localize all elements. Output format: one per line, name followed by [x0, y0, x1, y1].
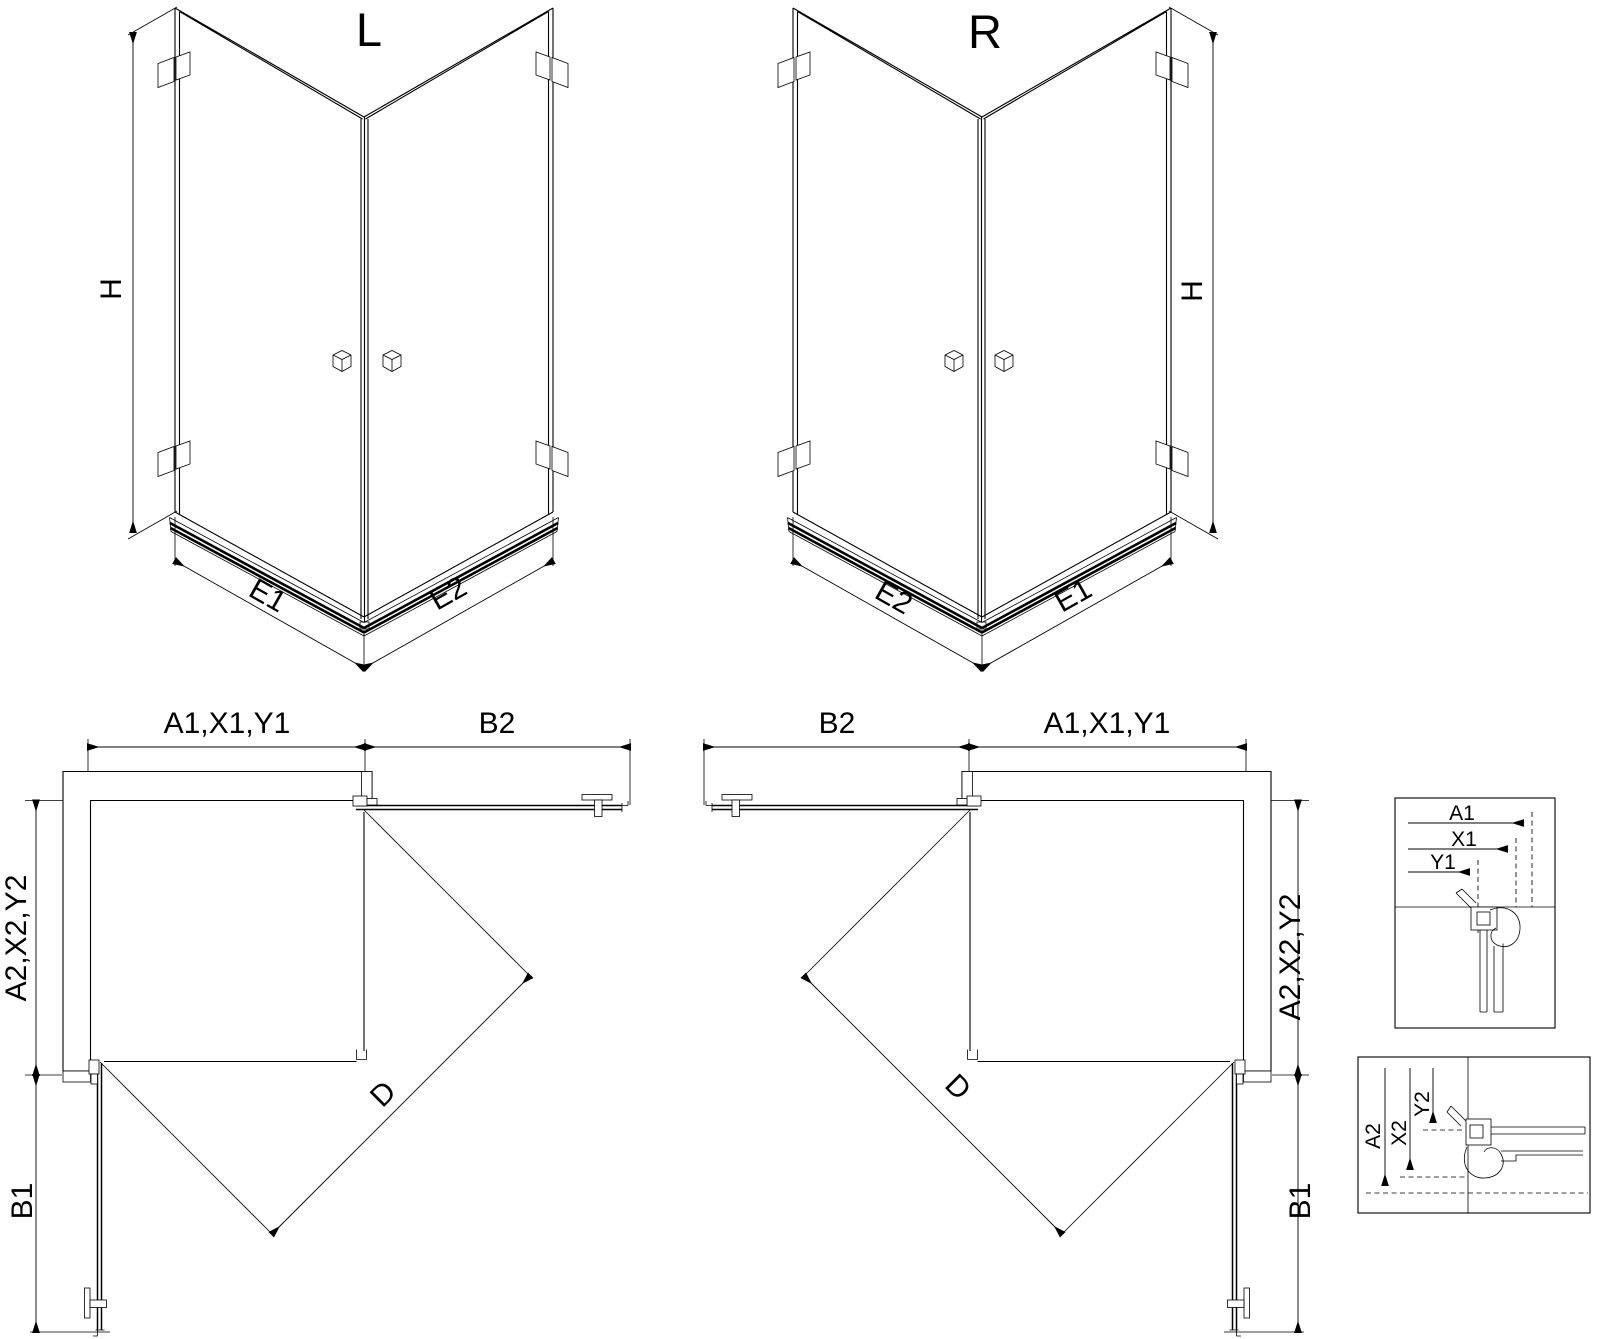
iso-left-title: L: [356, 3, 382, 56]
iso-right-height-label: H: [1176, 280, 1209, 302]
detail-y2-label: Y2: [1411, 1091, 1434, 1117]
wall-end-cap: [63, 1071, 91, 1082]
plan-left-b2-dimension: B2: [479, 707, 516, 740]
wall-profile-section: [1456, 889, 1520, 1012]
plan-right-top-dimension: A1,X1,Y1: [1044, 707, 1171, 740]
detail-x2-label: X2: [1388, 1120, 1411, 1146]
shower-enclosure-technical-drawing: L H E1 E2 R H E2 E1 A1,X1,Y1 B2 A2,X2,Y2…: [0, 0, 1600, 1339]
iso-right-title: R: [968, 5, 1002, 58]
plan-view-geometry: [25, 739, 630, 1336]
door-open-top: [353, 795, 628, 817]
door-handle: [582, 795, 612, 801]
plan-left-b1-dimension: B1: [6, 1183, 39, 1220]
door-open-left: [85, 1060, 107, 1336]
door-hinge: [367, 799, 377, 806]
plan-right-b2-dimension: B2: [819, 707, 856, 740]
door-hinges: [158, 52, 568, 477]
door-handle: [90, 1300, 107, 1308]
detail-a1-label: A1: [1449, 802, 1475, 825]
glass-panels: [175, 8, 553, 629]
door-handle: [85, 1288, 91, 1318]
door-hinge: [91, 1074, 98, 1084]
plan-left-top-dimension: A1,X1,Y1: [164, 707, 291, 740]
door-handle: [595, 800, 603, 817]
detail-a2-label: A2: [1362, 1123, 1385, 1149]
iso-right-e1-label: E1: [1049, 572, 1097, 619]
labels: L H E1 E2 R H E2 E1 A1,X1,Y1 B2 A2,X2,Y2…: [0, 3, 1477, 1219]
door-hinge: [353, 796, 367, 806]
detail-x1-label: X1: [1451, 828, 1477, 851]
detail-y1-label: Y1: [1430, 851, 1456, 874]
doors-closed: [104, 812, 367, 1062]
door-handles: [333, 351, 401, 372]
iso-right-e2-label: E2: [870, 574, 918, 621]
iso-view-geometry: [128, 7, 568, 672]
door-hinge: [89, 1060, 99, 1074]
door-swing-lines: [100, 810, 530, 1234]
diagonal-dimension-line: [272, 976, 530, 1234]
iso-view-right-geometry: [778, 7, 1218, 672]
drawing-svg: L H E1 E2 R H E2 E1 A1,X1,Y1 B2 A2,X2,Y2…: [0, 0, 1600, 1339]
plan-view-right-geometry: [704, 739, 1309, 1336]
plan-right-b1-dimension: B1: [1284, 1183, 1317, 1220]
plan-left-diagonal-dimension: D: [364, 1075, 403, 1114]
plan-dimensions: [25, 739, 630, 1332]
wall-hatched: [63, 772, 372, 1072]
plan-right-side-dimension: A2,X2,Y2: [1274, 894, 1307, 1021]
plan-left-side-dimension: A2,X2,Y2: [0, 875, 33, 1002]
iso-left-height-label: H: [95, 278, 128, 300]
plan-right-diagonal-dimension: D: [938, 1068, 977, 1107]
